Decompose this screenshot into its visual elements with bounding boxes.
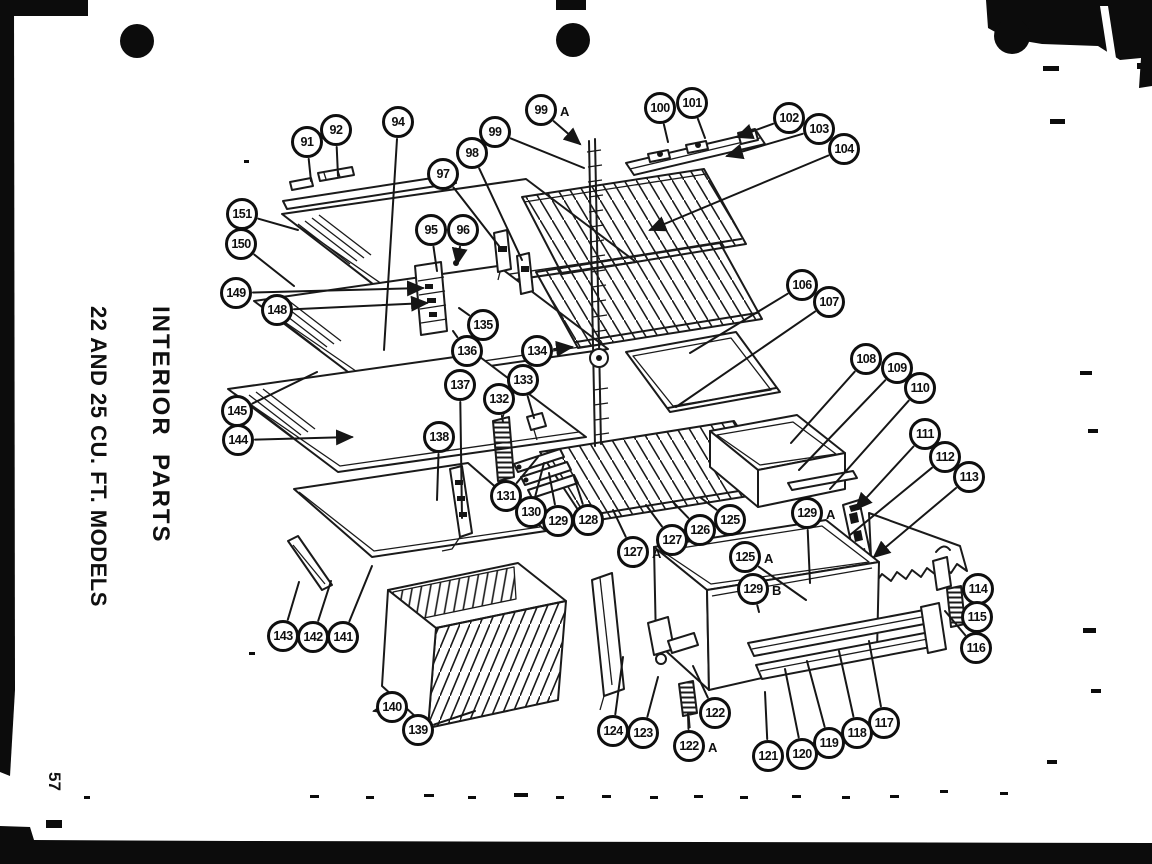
part-number: 97 <box>437 167 450 181</box>
part-number-suffix: A <box>652 546 661 561</box>
part-number: 131 <box>496 489 515 503</box>
part-number: 149 <box>226 286 245 300</box>
part-number: 151 <box>232 207 251 221</box>
part-number: 134 <box>527 344 546 358</box>
part-callout-122: 122 <box>699 697 731 729</box>
scanned-parts-page: 919294959697989999A100101102103104106107… <box>0 0 1152 864</box>
part-number: 99 <box>489 125 502 139</box>
part-callouts-layer: 919294959697989999A100101102103104106107… <box>0 0 1152 864</box>
part-number: 129 <box>548 514 567 528</box>
part-number: 122 <box>705 706 724 720</box>
part-number: 141 <box>333 630 352 644</box>
part-callout-99: 99 <box>479 116 511 148</box>
part-number: 103 <box>809 122 828 136</box>
part-number: 128 <box>578 513 597 527</box>
part-number: 106 <box>792 278 811 292</box>
part-callout-139: 139 <box>402 714 434 746</box>
part-number: 115 <box>968 610 987 624</box>
part-callout-124: 124 <box>597 715 629 747</box>
part-callout-125: 125 <box>714 504 746 536</box>
part-callout-138: 138 <box>423 421 455 453</box>
part-number: 127 <box>623 545 642 559</box>
part-number-suffix: A <box>560 104 569 119</box>
part-callout-95: 95 <box>415 214 447 246</box>
part-number: 130 <box>521 505 540 519</box>
part-number: 117 <box>875 716 894 730</box>
part-number: 139 <box>408 723 427 737</box>
part-callout-151: 151 <box>226 198 258 230</box>
part-number: 112 <box>936 450 955 464</box>
part-callout-136: 136 <box>451 335 483 367</box>
part-number-suffix: A <box>708 740 717 755</box>
part-number: 91 <box>301 135 314 149</box>
part-number: 92 <box>330 123 343 137</box>
part-number: 129 <box>743 582 762 596</box>
part-number: 144 <box>228 433 247 447</box>
part-callout-144: 144 <box>222 424 254 456</box>
part-number: 125 <box>735 550 754 564</box>
part-callout-142: 142 <box>297 621 329 653</box>
part-callout-143: 143 <box>267 620 299 652</box>
part-callout-141: 141 <box>327 621 359 653</box>
part-number: 101 <box>682 96 701 110</box>
part-callout-94: 94 <box>382 106 414 138</box>
part-number: 140 <box>382 700 401 714</box>
part-number: 136 <box>457 344 476 358</box>
part-callout-100: 100 <box>644 92 676 124</box>
part-callout-131: 131 <box>490 480 522 512</box>
part-callout-145: 145 <box>221 395 253 427</box>
part-number: 98 <box>466 146 479 160</box>
part-number: 104 <box>834 142 853 156</box>
part-callout-99a: 99A <box>525 94 557 126</box>
part-number: 102 <box>779 111 798 125</box>
part-number: 132 <box>489 392 508 406</box>
part-number: 94 <box>392 115 405 129</box>
part-callout-126: 126 <box>684 514 716 546</box>
part-number: 137 <box>450 378 469 392</box>
part-number: 121 <box>758 749 777 763</box>
part-callout-92: 92 <box>320 114 352 146</box>
part-callout-134: 134 <box>521 335 553 367</box>
part-number: 125 <box>720 513 739 527</box>
part-callout-123: 123 <box>627 717 659 749</box>
part-number: 111 <box>916 427 934 441</box>
part-number: 107 <box>819 295 838 309</box>
part-callout-110: 110 <box>904 372 936 404</box>
part-callout-104: 104 <box>828 133 860 165</box>
part-number: 95 <box>425 223 438 237</box>
part-callout-108: 108 <box>850 343 882 375</box>
part-number: 114 <box>969 582 988 596</box>
part-number: 118 <box>848 726 867 740</box>
part-callout-129a: 129A <box>791 497 823 529</box>
part-number: 100 <box>650 101 669 115</box>
part-number: 109 <box>887 361 906 375</box>
part-number-suffix: A <box>826 507 835 522</box>
part-number: 120 <box>792 747 811 761</box>
part-number: 123 <box>633 726 652 740</box>
part-callout-97: 97 <box>427 158 459 190</box>
part-number: 126 <box>690 523 709 537</box>
part-number: 127 <box>662 533 681 547</box>
part-number: 142 <box>303 630 322 644</box>
part-callout-122a: 122A <box>673 730 705 762</box>
part-number: 129 <box>797 506 816 520</box>
part-number: 143 <box>273 629 292 643</box>
part-callout-148: 148 <box>261 294 293 326</box>
part-number: 138 <box>429 430 448 444</box>
part-number: 145 <box>227 404 246 418</box>
part-callout-140: 140 <box>376 691 408 723</box>
part-number: 113 <box>960 470 979 484</box>
part-number: 96 <box>457 223 470 237</box>
part-callout-120: 120 <box>786 738 818 770</box>
part-callout-128: 128 <box>572 504 604 536</box>
part-callout-121: 121 <box>752 740 784 772</box>
part-number: 110 <box>911 381 930 395</box>
part-callout-127a: 127A <box>617 536 649 568</box>
part-callout-101: 101 <box>676 87 708 119</box>
part-callout-118: 118 <box>841 717 873 749</box>
part-number: 150 <box>231 237 250 251</box>
part-number: 116 <box>967 641 986 655</box>
part-callout-149: 149 <box>220 277 252 309</box>
part-callout-125a: 125A <box>729 541 761 573</box>
part-callout-133: 133 <box>507 364 539 396</box>
part-number: 124 <box>603 724 622 738</box>
part-number: 122 <box>679 739 698 753</box>
part-callout-116: 116 <box>960 632 992 664</box>
part-callout-107: 107 <box>813 286 845 318</box>
part-callout-137: 137 <box>444 369 476 401</box>
part-callout-96: 96 <box>447 214 479 246</box>
part-number-suffix: A <box>764 551 773 566</box>
part-number: 133 <box>513 373 532 387</box>
part-number: 99 <box>535 103 548 117</box>
part-number: 135 <box>473 318 492 332</box>
part-number-suffix: B <box>772 583 781 598</box>
part-number: 108 <box>856 352 875 366</box>
part-callout-115: 115 <box>961 601 993 633</box>
part-number: 119 <box>820 736 839 750</box>
part-callout-150: 150 <box>225 228 257 260</box>
part-callout-91: 91 <box>291 126 323 158</box>
part-callout-113: 113 <box>953 461 985 493</box>
part-number: 148 <box>267 303 286 317</box>
part-callout-102: 102 <box>773 102 805 134</box>
part-callout-129b: 129B <box>737 573 769 605</box>
